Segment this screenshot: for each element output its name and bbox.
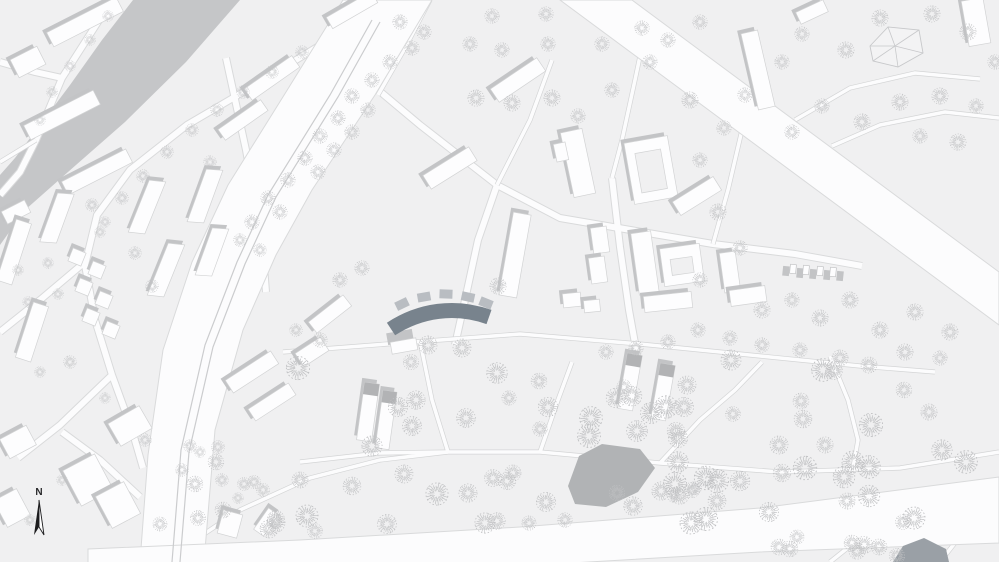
rowhouse [830, 267, 837, 277]
north-arrow: N [30, 488, 48, 538]
north-arrow-icon [31, 498, 47, 538]
rowhouse [783, 266, 790, 276]
rowhouse [790, 264, 797, 274]
map-viewport[interactable]: N [0, 0, 999, 562]
site-plan-map[interactable] [0, 0, 999, 562]
rowhouse [810, 269, 817, 279]
rowhouse [837, 271, 844, 281]
rowhouse [817, 266, 824, 276]
north-label: N [30, 488, 48, 498]
rowhouse [803, 265, 810, 275]
